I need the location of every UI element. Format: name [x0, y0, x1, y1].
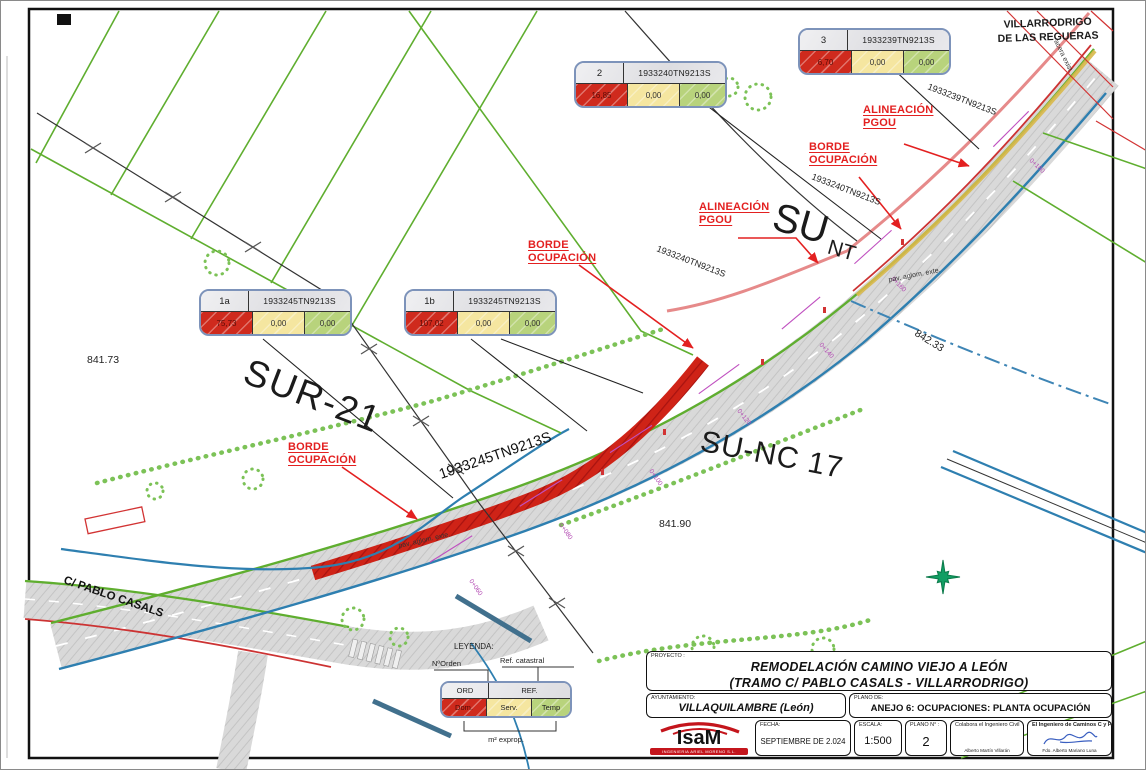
occ-order: 1b	[406, 291, 454, 311]
occ-ref: 1933245TN9213S	[249, 291, 350, 311]
elevation-label: 842.33	[912, 327, 946, 354]
parcel-ref-label: 1933240TN9213S	[655, 244, 727, 280]
isam-logo-text: IsaM	[677, 727, 721, 747]
north-star-icon	[926, 560, 960, 594]
colabora-cell: Colabora el Ingeniero Civil Alberto Mart…	[950, 720, 1024, 756]
annotation-alineacion-pgou: ALINEACIÓN PGOU	[699, 201, 769, 227]
legend-temp-cell: Temp	[532, 699, 570, 716]
occ-dom-value: 6,70	[800, 51, 852, 73]
occupation-table-3: 31933239TN9213S 6,700,000,00	[798, 28, 951, 75]
occ-dom-value: 107,02	[406, 312, 458, 334]
annotation-borde-ocupacion: BORDE OCUPACIÓN	[288, 441, 356, 467]
colabora-name: Alberto Martín Villarán	[951, 748, 1023, 753]
fecha-value: SEPTIEMBRE DE 2.024	[761, 737, 846, 746]
proyecto-label: PROYECTO :	[651, 653, 685, 659]
annotation-line: BORDE	[288, 441, 356, 454]
escala-cell: ESCALA: 1:500	[854, 720, 902, 756]
ingeniero-name: Fdo. Alberto Mariano Luna	[1028, 748, 1111, 753]
legend-ord-cell: ORD	[442, 683, 489, 698]
elevation-label: 841.90	[659, 518, 691, 530]
occ-dom-value: 16,85	[576, 84, 628, 106]
occ-order: 2	[576, 63, 624, 83]
legend-m2-label: m² exprop.	[426, 735, 586, 744]
company-logo: IsaM INGENIERIA ARIEL MORENO S.L.	[646, 720, 752, 756]
occ-serv-value: 0,00	[253, 312, 305, 334]
ayuntamiento-value: VILLAQUILAMBRE (León)	[678, 702, 813, 714]
ayuntamiento-label: AYUNTAMIENTO:	[651, 695, 695, 701]
occ-ref: 1933240TN9213S	[624, 63, 725, 83]
fecha-label: FECHA:	[760, 722, 780, 728]
town-label-villarrodrigo: VILLARRODRIGO DE LAS REGUERAS	[997, 15, 1099, 46]
occ-dom-value: 75,73	[201, 312, 253, 334]
elevation-label: 841.73	[87, 354, 119, 366]
occ-ref: 1933239TN9213S	[848, 30, 949, 50]
ingeniero-label: El Ingeniero de Caminos C y P.	[1032, 722, 1112, 728]
legend-sample-table: ORDREF. Dom.Serv.Temp	[440, 681, 572, 718]
project-title-cell: PROYECTO : REMODELACIÓN CAMINO VIEJO A L…	[646, 651, 1112, 691]
annotation-borde-ocupacion: BORDE OCUPACIÓN	[528, 239, 596, 265]
legend-serv-cell: Serv.	[487, 699, 532, 716]
occ-temp-value: 0,00	[680, 84, 725, 106]
fecha-cell: FECHA: SEPTIEMBRE DE 2.024	[755, 720, 851, 756]
plano-de-label: PLANO DE:	[854, 695, 883, 701]
legend-norden-label: NºOrden	[432, 659, 461, 668]
occ-order: 3	[800, 30, 848, 50]
isam-logo-icon: IsaM	[651, 721, 747, 747]
legend-dom-cell: Dom.	[442, 699, 487, 716]
annotation-line: OCUPACIÓN	[809, 154, 877, 167]
parcel-ref-label: 1933239TN9213S	[926, 82, 998, 118]
annotation-line: PGOU	[699, 214, 769, 227]
colabora-label: Colabora el Ingeniero Civil	[955, 722, 1020, 728]
annotation-line: ALINEACIÓN	[699, 201, 769, 214]
legend: LEYENDA: NºOrden Ref. catastral ORDREF. …	[426, 637, 598, 757]
plano-num-cell: PLANO N° : 2	[905, 720, 947, 756]
occ-serv-value: 0,00	[628, 84, 680, 106]
occ-serv-value: 0,00	[458, 312, 510, 334]
occ-temp-value: 0,00	[510, 312, 555, 334]
occupation-table-1b: 1b1933245TN9213S 107,020,000,00	[404, 289, 557, 336]
occ-ref: 1933245TN9213S	[454, 291, 555, 311]
annotation-line: OCUPACIÓN	[528, 252, 596, 265]
red-parcel-rect	[85, 507, 145, 534]
occ-temp-value: 0,00	[904, 51, 949, 73]
annotation-borde-ocupacion: BORDE OCUPACIÓN	[809, 141, 877, 167]
occ-temp-value: 0,00	[305, 312, 350, 334]
legend-refcat-label: Ref. catastral	[500, 656, 544, 665]
escala-value: 1:500	[864, 735, 892, 747]
legend-title: LEYENDA:	[454, 642, 494, 651]
ayuntamiento-cell: AYUNTAMIENTO: VILLAQUILAMBRE (León)	[646, 693, 846, 718]
annotation-line: BORDE	[528, 239, 596, 252]
occupation-table-1a: 1a1933245TN9213S 75,730,000,00	[199, 289, 352, 336]
annotation-line: ALINEACIÓN	[863, 104, 933, 117]
isam-logo-tagline: INGENIERIA ARIEL MORENO S.L.	[650, 748, 748, 755]
title-block: PROYECTO : REMODELACIÓN CAMINO VIEJO A L…	[646, 651, 1112, 758]
chainage-label: 0+060	[467, 578, 483, 597]
annotation-alineacion-pgou: ALINEACIÓN PGOU	[863, 104, 933, 130]
plano-num-label: PLANO N° :	[910, 722, 939, 728]
parcel-ref-label: 1933240TN9213S	[810, 172, 882, 208]
signature-icon	[1042, 730, 1098, 748]
occupation-table-2: 21933240TN9213S 16,850,000,00	[574, 61, 727, 108]
annotation-line: PGOU	[863, 117, 933, 130]
ingeniero-cell: El Ingeniero de Caminos C y P. Fdo. Albe…	[1027, 720, 1112, 756]
plano-de-value: ANEJO 6: OCUPACIONES: PLANTA OCUPACIÓN	[871, 703, 1091, 714]
escala-label: ESCALA:	[859, 722, 882, 728]
project-title-line1: REMODELACIÓN CAMINO VIEJO A LEÓN	[647, 659, 1111, 675]
legend-ref-cell: REF.	[489, 683, 570, 698]
plan-sheet: 0+060 0+080 0+100 0+120 0+140 0+160 0+18…	[0, 0, 1146, 770]
plano-num-value: 2	[922, 734, 929, 749]
chainage-label: 0+080	[557, 522, 573, 541]
frame-corner-mark	[57, 14, 71, 25]
annotation-line: BORDE	[809, 141, 877, 154]
occ-order: 1a	[201, 291, 249, 311]
annotation-line: OCUPACIÓN	[288, 454, 356, 467]
project-title-line2: (TRAMO C/ PABLO CASALS - VILLARRODRIGO)	[647, 675, 1111, 691]
occ-serv-value: 0,00	[852, 51, 904, 73]
plano-de-cell: PLANO DE: ANEJO 6: OCUPACIONES: PLANTA O…	[849, 693, 1112, 718]
